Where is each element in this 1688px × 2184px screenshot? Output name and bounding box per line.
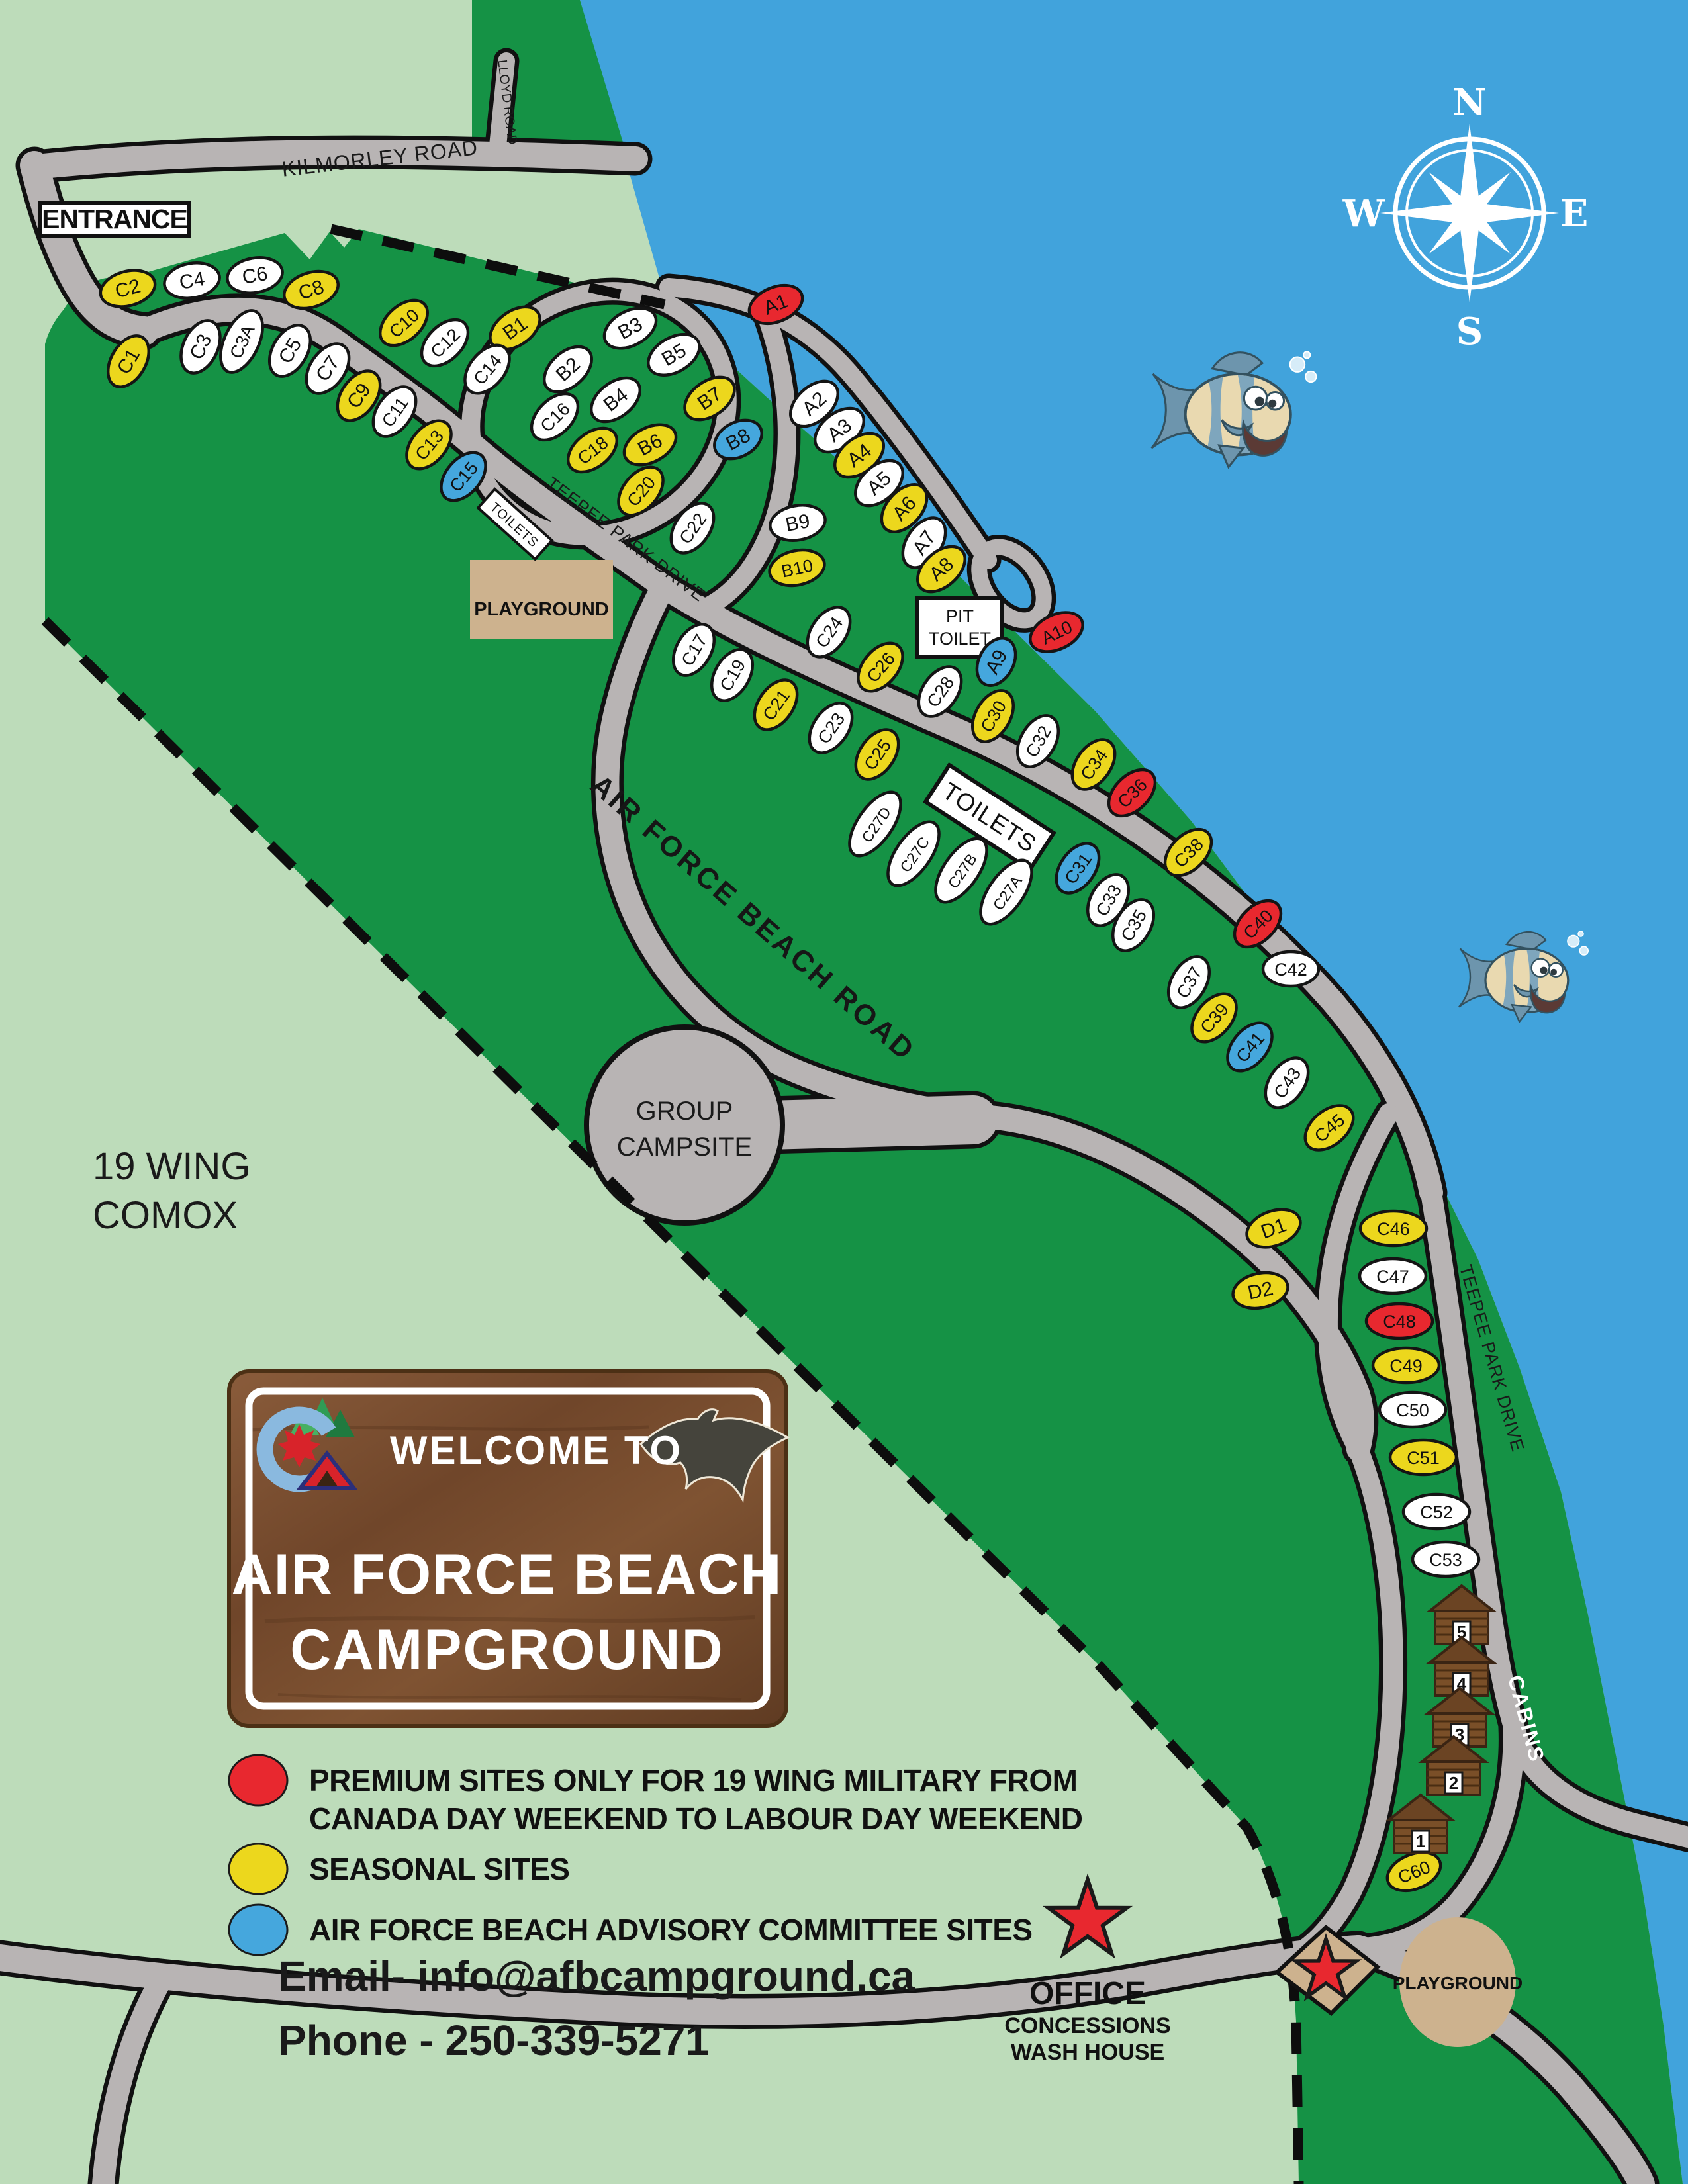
office-legend-title: OFFICE <box>1029 1976 1146 2011</box>
svg-text:C46: C46 <box>1377 1219 1410 1239</box>
office-legend-line3: WASH HOUSE <box>1011 2040 1164 2065</box>
svg-text:C53: C53 <box>1429 1550 1462 1570</box>
office-legend-line2: CONCESSIONS <box>1004 2013 1170 2038</box>
map-canvas: GROUP CAMPSITE PLAYGROUND KILMORLEY ROAD… <box>0 0 1688 2184</box>
contact-email: Email- info@afbcampground.ca <box>278 1952 915 2000</box>
svg-text:C42: C42 <box>1274 960 1307 979</box>
compass-e: E <box>1560 192 1589 236</box>
playground-upper: PLAYGROUND <box>470 560 613 639</box>
playground-upper-label: PLAYGROUND <box>474 599 609 620</box>
site-C52: C52 <box>1403 1494 1470 1529</box>
entrance-label: ENTRANCE <box>42 204 187 234</box>
group-campsite-label-2: CAMPSITE <box>617 1132 752 1161</box>
legend-swatch-premium <box>229 1755 287 1805</box>
legend-text-premium-1: PREMIUM SITES ONLY FOR 19 WING MILITARY … <box>309 1763 1077 1797</box>
pit-toilet-label-1: PIT <box>946 606 974 626</box>
legend-text-seasonal-1: SEASONAL SITES <box>309 1852 569 1886</box>
sign-title-line1: AIR FORCE BEACH <box>232 1543 783 1606</box>
group-campsite-label-1: GROUP <box>636 1097 733 1126</box>
site-C53: C53 <box>1413 1542 1479 1576</box>
campground-map-page: GROUP CAMPSITE PLAYGROUND KILMORLEY ROAD… <box>0 0 1688 2184</box>
site-C49: C49 <box>1373 1348 1439 1383</box>
svg-text:C6: C6 <box>240 263 269 289</box>
sign-title-line2: CAMPGROUND <box>290 1618 724 1682</box>
sign-welcome-text: WELCOME TO <box>390 1428 682 1473</box>
area-label-19wing: 19 WING <box>93 1145 251 1188</box>
svg-text:C50: C50 <box>1396 1400 1429 1420</box>
group-campsite-stem <box>768 1120 973 1125</box>
compass-n: N <box>1452 81 1486 124</box>
svg-text:C51: C51 <box>1407 1448 1440 1468</box>
site-C47: C47 <box>1360 1259 1426 1293</box>
svg-text:1: 1 <box>1416 1831 1425 1851</box>
site-C42: C42 <box>1263 952 1319 986</box>
site-C50: C50 <box>1380 1392 1446 1427</box>
svg-text:C52: C52 <box>1420 1502 1453 1522</box>
site-C46: C46 <box>1360 1211 1427 1246</box>
svg-text:B9: B9 <box>784 510 812 536</box>
entrance-sign: ENTRANCE <box>40 203 189 236</box>
svg-text:2: 2 <box>1449 1773 1458 1793</box>
welcome-sign: WELCOME TO AIR FORCE BEACH CAMPGROUND <box>229 1371 788 1726</box>
playground-lower-label: PLAYGROUND <box>1393 1973 1523 1993</box>
compass-s: S <box>1456 310 1483 353</box>
legend-swatch-committee <box>229 1905 287 1955</box>
contact-phone: Phone - 250-339-5271 <box>278 2017 709 2064</box>
compass-w: W <box>1342 192 1385 236</box>
svg-text:C4: C4 <box>177 268 207 294</box>
svg-text:C47: C47 <box>1376 1267 1409 1287</box>
legend-text-premium-2: CANADA DAY WEEKEND TO LABOUR DAY WEEKEND <box>309 1801 1082 1836</box>
svg-text:C49: C49 <box>1389 1356 1423 1376</box>
legend-text-committee-1: AIR FORCE BEACH ADVISORY COMMITTEE SITES <box>309 1913 1033 1947</box>
svg-text:C48: C48 <box>1383 1312 1416 1332</box>
legend-swatch-seasonal <box>229 1844 287 1894</box>
area-label-comox: COMOX <box>93 1194 238 1237</box>
site-C48: C48 <box>1366 1304 1432 1338</box>
pit-toilet-label-2: TOILET <box>929 629 991 649</box>
site-C51: C51 <box>1390 1440 1456 1475</box>
